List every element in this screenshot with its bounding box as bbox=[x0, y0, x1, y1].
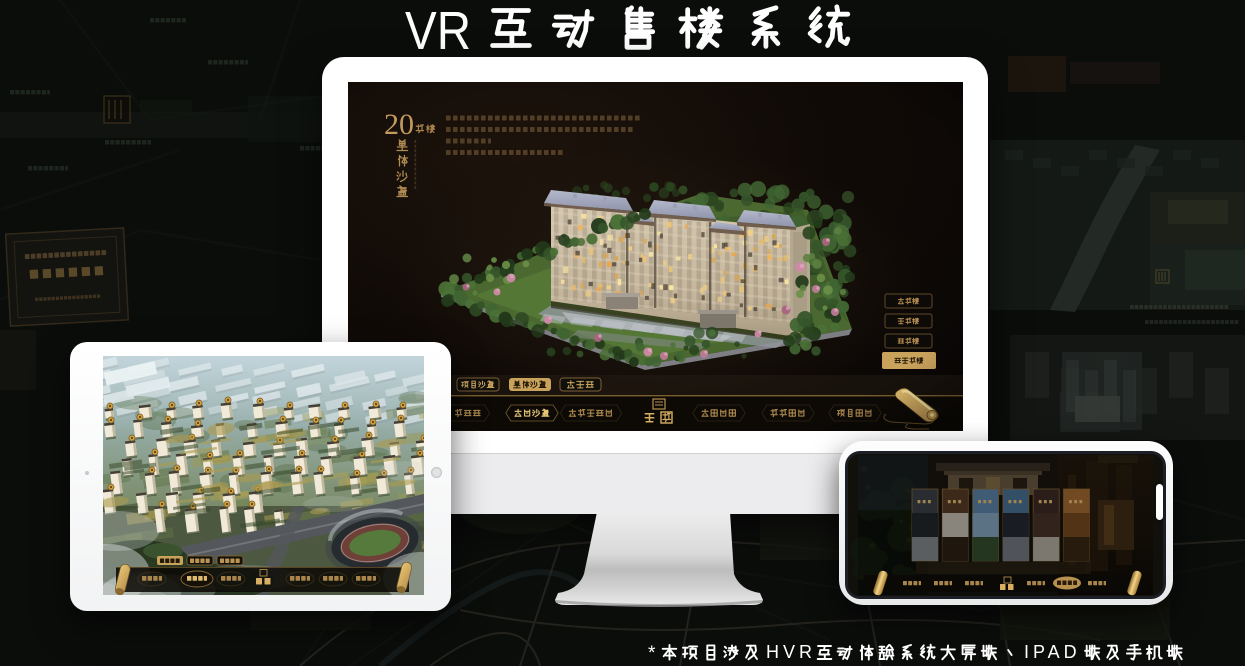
svg-text:HVR: HVR bbox=[766, 642, 816, 662]
svg-text:*: * bbox=[648, 643, 656, 664]
svg-text:IPAD: IPAD bbox=[1024, 642, 1081, 662]
